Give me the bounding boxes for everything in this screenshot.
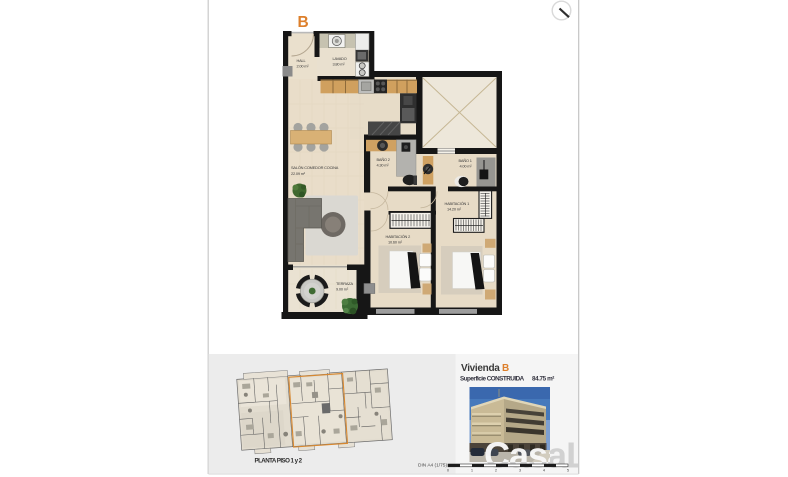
svg-text:14.20 m²: 14.20 m² bbox=[447, 207, 462, 212]
svg-text:DIN A4 (1/75): DIN A4 (1/75) bbox=[418, 463, 447, 469]
svg-text:Superficie CONSTRUIDA: Superficie CONSTRUIDA bbox=[460, 376, 525, 383]
svg-text:HABITACIÓN 1: HABITACIÓN 1 bbox=[445, 201, 470, 206]
svg-text:22.09 m²: 22.09 m² bbox=[291, 171, 306, 176]
svg-text:HABITACIÓN 2: HABITACIÓN 2 bbox=[386, 234, 411, 239]
svg-text:3.80 m²: 3.80 m² bbox=[333, 62, 346, 67]
svg-text:9.00 m²: 9.00 m² bbox=[336, 287, 349, 292]
svg-text:Vivienda B: Vivienda B bbox=[461, 363, 509, 374]
svg-text:84.75 m²: 84.75 m² bbox=[532, 376, 554, 383]
svg-text:LAVADO: LAVADO bbox=[333, 56, 347, 61]
svg-text:4.00 m²: 4.00 m² bbox=[460, 164, 473, 169]
svg-text:BAÑO 2: BAÑO 2 bbox=[377, 157, 390, 162]
svg-text:HALL: HALL bbox=[297, 58, 307, 63]
svg-text:BAÑO 1: BAÑO 1 bbox=[459, 158, 472, 163]
svg-text:4.30 m²: 4.30 m² bbox=[377, 163, 390, 168]
svg-text:2.00 m²: 2.00 m² bbox=[297, 64, 310, 69]
svg-text:10.60 m²: 10.60 m² bbox=[388, 240, 403, 245]
svg-text:TERRAZA: TERRAZA bbox=[336, 281, 353, 286]
svg-text:SALÓN COMEDOR COCINA: SALÓN COMEDOR COCINA bbox=[291, 165, 339, 170]
svg-text:B: B bbox=[298, 14, 309, 31]
svg-text:PLANTA PISO 1 y 2: PLANTA PISO 1 y 2 bbox=[255, 458, 303, 465]
